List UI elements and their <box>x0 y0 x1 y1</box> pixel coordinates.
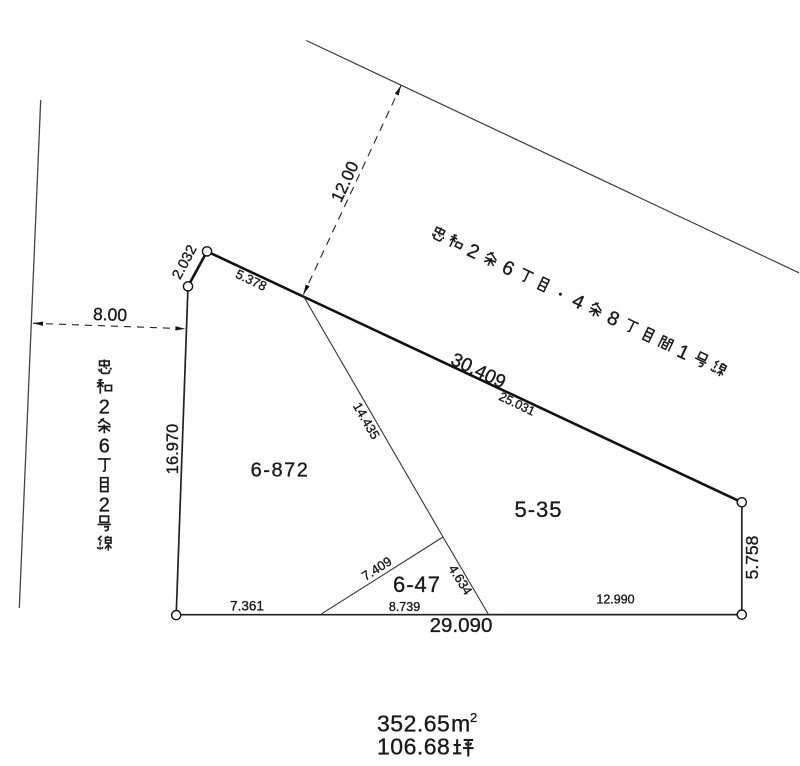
svg-text:m: m <box>451 711 470 737</box>
svg-text:106.68: 106.68 <box>377 734 450 760</box>
svg-text:7.361: 7.361 <box>230 599 264 614</box>
svg-text:8.00: 8.00 <box>93 304 128 325</box>
svg-text:5-35: 5-35 <box>514 497 562 522</box>
svg-text:6-47: 6-47 <box>393 572 441 597</box>
svg-text:6-872: 6-872 <box>251 460 310 482</box>
svg-text:2: 2 <box>99 396 110 418</box>
svg-text:2: 2 <box>99 494 110 516</box>
svg-text:8.739: 8.739 <box>389 600 420 614</box>
svg-text:5.758: 5.758 <box>742 536 762 580</box>
svg-text:12.990: 12.990 <box>596 593 634 607</box>
svg-text:16.970: 16.970 <box>164 424 182 474</box>
svg-text:2: 2 <box>470 710 477 725</box>
svg-text:6: 6 <box>99 436 110 458</box>
svg-text:29.090: 29.090 <box>430 614 493 637</box>
